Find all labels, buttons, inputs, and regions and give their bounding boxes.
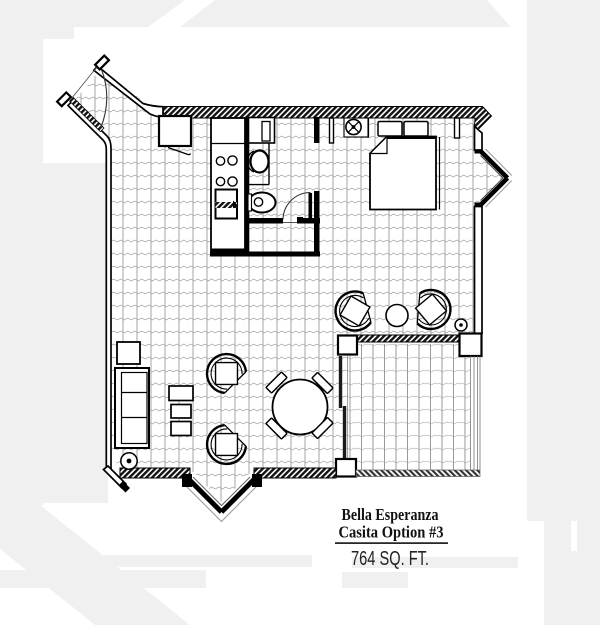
svg-text:764 SQ. FT.: 764 SQ. FT. [351,548,429,570]
svg-text:Bella Esperanza: Bella Esperanza [342,505,439,524]
svg-text:Casita Option #3: Casita Option #3 [339,523,444,542]
